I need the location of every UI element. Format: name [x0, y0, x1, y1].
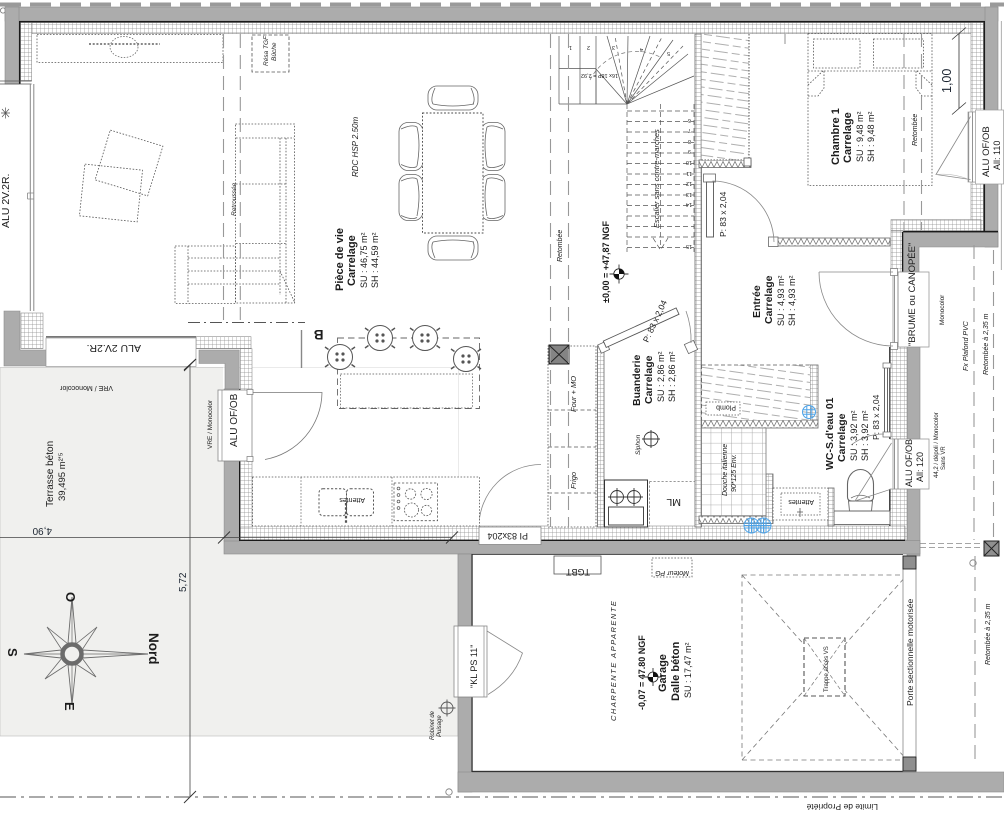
svg-text:Escalier sans contre-marches: Escalier sans contre-marches	[652, 129, 661, 228]
svg-text:Frigo: Frigo	[569, 472, 578, 489]
svg-text:P: 83 x 2,04: P: 83 x 2,04	[718, 191, 728, 237]
svg-text:Terrasse béton: Terrasse béton	[45, 441, 56, 507]
svg-text:8: 8	[688, 138, 691, 144]
svg-text:Four + MO: Four + MO	[569, 376, 578, 412]
svg-text:SU : 3,92 m²: SU : 3,92 m²	[849, 410, 859, 461]
svg-text:ALU OF/OB: ALU OF/OB	[981, 126, 992, 177]
svg-text:Carrelage: Carrelage	[643, 355, 655, 404]
svg-text:2: 2	[587, 44, 590, 50]
svg-text:Trappe accès VS: Trappe accès VS	[824, 646, 830, 692]
svg-text:SU : 17,47 m²: SU : 17,47 m²	[683, 642, 693, 698]
svg-text:SH : 4,93 m²: SH : 4,93 m²	[787, 275, 797, 326]
svg-text:VRE / Monocolor: VRE / Monocolor	[59, 384, 113, 391]
svg-text:12: 12	[686, 180, 692, 186]
svg-text:RDC HSP 2.50m: RDC HSP 2.50m	[351, 117, 360, 178]
svg-text:Robinet de: Robinet de	[430, 710, 436, 740]
svg-text:-0,07 = 47.80 NGF: -0,07 = 47.80 NGF	[637, 635, 647, 710]
svg-text:SH : 2,86 m²: SH : 2,86 m²	[667, 351, 677, 402]
svg-text:1,00: 1,00	[940, 69, 954, 93]
svg-text:SH : 3,92 m²: SH : 3,92 m²	[860, 410, 870, 461]
svg-text:"KL PS 11": "KL PS 11"	[469, 645, 479, 688]
svg-text:Carrelage: Carrelage	[842, 112, 854, 163]
svg-text:Carrelage: Carrelage	[836, 413, 848, 462]
svg-text:Moteur PG: Moteur PG	[655, 569, 689, 576]
svg-text:Retombée à 2,35 m: Retombée à 2,35 m	[985, 603, 992, 665]
svg-text:Garage: Garage	[657, 654, 669, 692]
svg-text:9: 9	[688, 148, 691, 154]
svg-text:Fx Plafond PVC: Fx Plafond PVC	[963, 320, 970, 371]
svg-text:SH : 9,48 m²: SH : 9,48 m²	[866, 111, 876, 162]
svg-text:Dalle béton: Dalle béton	[670, 641, 682, 701]
svg-text:4: 4	[640, 46, 643, 52]
svg-text:SU : 9,48 m²: SU : 9,48 m²	[855, 111, 865, 162]
svg-text:SH : 44,59 m²: SH : 44,59 m²	[370, 232, 380, 288]
svg-text:7: 7	[688, 127, 691, 133]
svg-text:Carrelage: Carrelage	[763, 275, 775, 324]
svg-text:Limite de Propriété: Limite de Propriété	[806, 802, 878, 812]
svg-text:6: 6	[688, 117, 691, 123]
svg-text:Puisage: Puisage	[437, 715, 443, 737]
svg-text:1: 1	[569, 44, 572, 50]
svg-text:B: B	[314, 327, 324, 342]
svg-text:P: 83 x 2,04: P: 83 x 2,04	[871, 394, 881, 440]
svg-text:Retombée: Retombée	[557, 230, 564, 262]
svg-text:ALU OF/OB: ALU OF/OB	[229, 393, 240, 447]
svg-text:5,72: 5,72	[178, 572, 189, 592]
svg-text:15: 15	[686, 243, 692, 249]
svg-text:O: O	[63, 592, 78, 602]
svg-text:Attentes: Attentes	[788, 498, 814, 505]
svg-text:SU : 46,75 m²: SU : 46,75 m²	[359, 232, 369, 288]
svg-text:90*125 Env.: 90*125 Env.	[731, 454, 738, 492]
svg-text:±0,00 = +47,87 NGF: ±0,00 = +47,87 NGF	[601, 221, 611, 303]
svg-text:39,495 m²'⁵: 39,495 m²'⁵	[57, 452, 68, 501]
svg-text:Plomb: Plomb	[716, 404, 736, 411]
svg-text:S: S	[5, 648, 20, 657]
svg-text:PI 83x204: PI 83x204	[487, 531, 528, 541]
svg-text:"BRUME ou CANOPÉE": "BRUME ou CANOPÉE"	[907, 243, 918, 346]
svg-text:Porte sectionnelle motorisée: Porte sectionnelle motorisée	[905, 598, 915, 706]
svg-text:ALU 2V.2R.: ALU 2V.2R.	[87, 342, 141, 354]
svg-text:Attentes: Attentes	[339, 496, 365, 503]
svg-text:E: E	[62, 702, 77, 711]
svg-text:Monocolor: Monocolor	[939, 294, 946, 325]
svg-text:ML: ML	[666, 496, 681, 508]
svg-text:Nord: Nord	[146, 633, 161, 665]
svg-text:VRE / Monocolor: VRE / Monocolor	[207, 399, 214, 449]
svg-text:TGBT: TGBT	[565, 567, 590, 577]
svg-text:WC-S.d'eau 01: WC-S.d'eau 01	[824, 397, 836, 470]
svg-text:SU : 4,93 m²: SU : 4,93 m²	[776, 275, 786, 326]
svg-text:Bûche: Bûche	[271, 42, 278, 61]
svg-text:Siphon: Siphon	[635, 434, 642, 455]
svg-text:ALU OF/OB: ALU OF/OB	[904, 439, 914, 487]
svg-text:All: 110: All: 110	[992, 141, 1002, 170]
svg-text:44,2 / dépoli / Monocolor: 44,2 / dépoli / Monocolor	[934, 412, 940, 478]
svg-text:Douche italienne: Douche italienne	[722, 444, 729, 496]
svg-text:14: 14	[686, 201, 692, 207]
svg-text:All: 120: All: 120	[915, 452, 925, 482]
svg-text:CHARPENTE APPARENTE: CHARPENTE APPARENTE	[609, 600, 618, 721]
svg-text:Résa TGF: Résa TGF	[263, 35, 270, 66]
svg-text:Retroussée: Retroussée	[231, 182, 238, 216]
svg-text:16x 18P = 2,92: 16x 18P = 2,92	[581, 72, 618, 78]
svg-text:5: 5	[667, 50, 670, 56]
svg-text:Buanderie: Buanderie	[631, 354, 643, 406]
svg-text:Retombée: Retombée	[912, 114, 919, 146]
svg-text:Carrelage: Carrelage	[346, 235, 358, 286]
svg-text:Chambre 1: Chambre 1	[830, 108, 842, 165]
svg-text:11: 11	[686, 170, 692, 176]
svg-text:3: 3	[612, 44, 615, 50]
svg-text:4,90: 4,90	[32, 525, 52, 536]
svg-text:SU : 2,86 m²: SU : 2,86 m²	[656, 351, 666, 402]
svg-text:Entrée: Entrée	[751, 285, 763, 318]
svg-text:ALU 2V.2R.: ALU 2V.2R.	[0, 174, 12, 228]
svg-text:Retombée à 2,35 m: Retombée à 2,35 m	[983, 313, 990, 375]
svg-text:13: 13	[686, 191, 692, 197]
svg-text:Sans VR: Sans VR	[941, 446, 947, 470]
svg-text:10: 10	[686, 159, 692, 165]
svg-text:Pièce de vie: Pièce de vie	[334, 228, 346, 291]
